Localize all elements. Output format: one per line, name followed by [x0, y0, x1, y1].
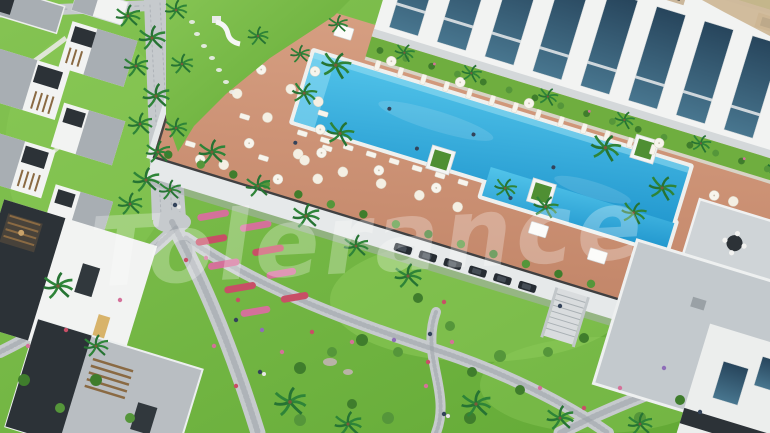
render-image: Tolerance [0, 0, 770, 433]
rock [323, 358, 337, 366]
rock [343, 369, 353, 375]
resort-render-canvas: Tolerance [0, 0, 770, 433]
